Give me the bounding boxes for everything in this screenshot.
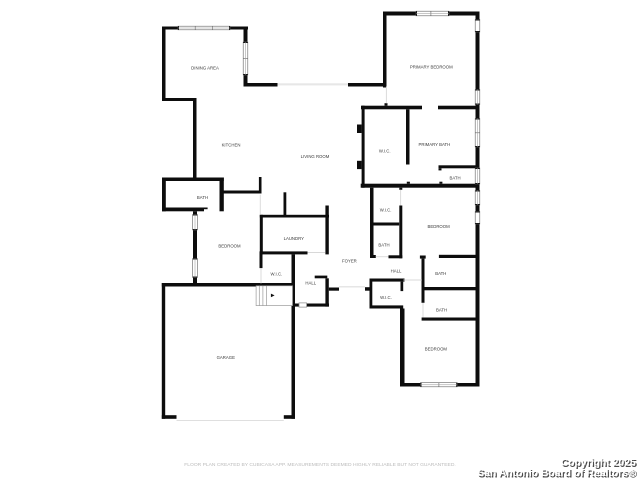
svg-text:BEDROOM: BEDROOM — [425, 347, 448, 352]
svg-text:BATH: BATH — [436, 307, 447, 312]
svg-text:HALL: HALL — [391, 269, 402, 274]
svg-text:FLOOR PLAN CREATED BY CUBICASA: FLOOR PLAN CREATED BY CUBICASA APP. MEAS… — [184, 462, 456, 468]
svg-text:BEDROOM: BEDROOM — [427, 224, 450, 229]
svg-text:W.I.C.: W.I.C. — [380, 207, 392, 212]
svg-text:GARAGE: GARAGE — [217, 355, 236, 360]
svg-text:PRIMARY BATH: PRIMARY BATH — [419, 142, 451, 147]
svg-text:LAUNDRY: LAUNDRY — [284, 236, 305, 241]
svg-text:BATH: BATH — [450, 175, 461, 180]
svg-text:HALL: HALL — [305, 281, 316, 286]
svg-text:W.I.C.: W.I.C. — [380, 295, 392, 300]
svg-text:BATH: BATH — [435, 271, 446, 276]
svg-text:W.I.C.: W.I.C. — [379, 149, 391, 154]
svg-text:LIVING ROOM: LIVING ROOM — [301, 154, 330, 159]
svg-text:BATH: BATH — [378, 243, 389, 248]
svg-text:BATH: BATH — [197, 195, 208, 200]
svg-text:KITCHEN: KITCHEN — [222, 143, 241, 148]
svg-text:PRIMARY BEDROOM: PRIMARY BEDROOM — [410, 65, 453, 70]
svg-text:BEDROOM: BEDROOM — [218, 243, 241, 248]
svg-text:San Antonio Board of Realtors®: San Antonio Board of Realtors® — [477, 468, 636, 479]
svg-text:FOYER: FOYER — [342, 259, 357, 264]
svg-text:W.I.C.: W.I.C. — [271, 272, 283, 277]
svg-text:Copyright 2025: Copyright 2025 — [561, 458, 636, 469]
svg-text:DINING AREA: DINING AREA — [191, 65, 219, 70]
